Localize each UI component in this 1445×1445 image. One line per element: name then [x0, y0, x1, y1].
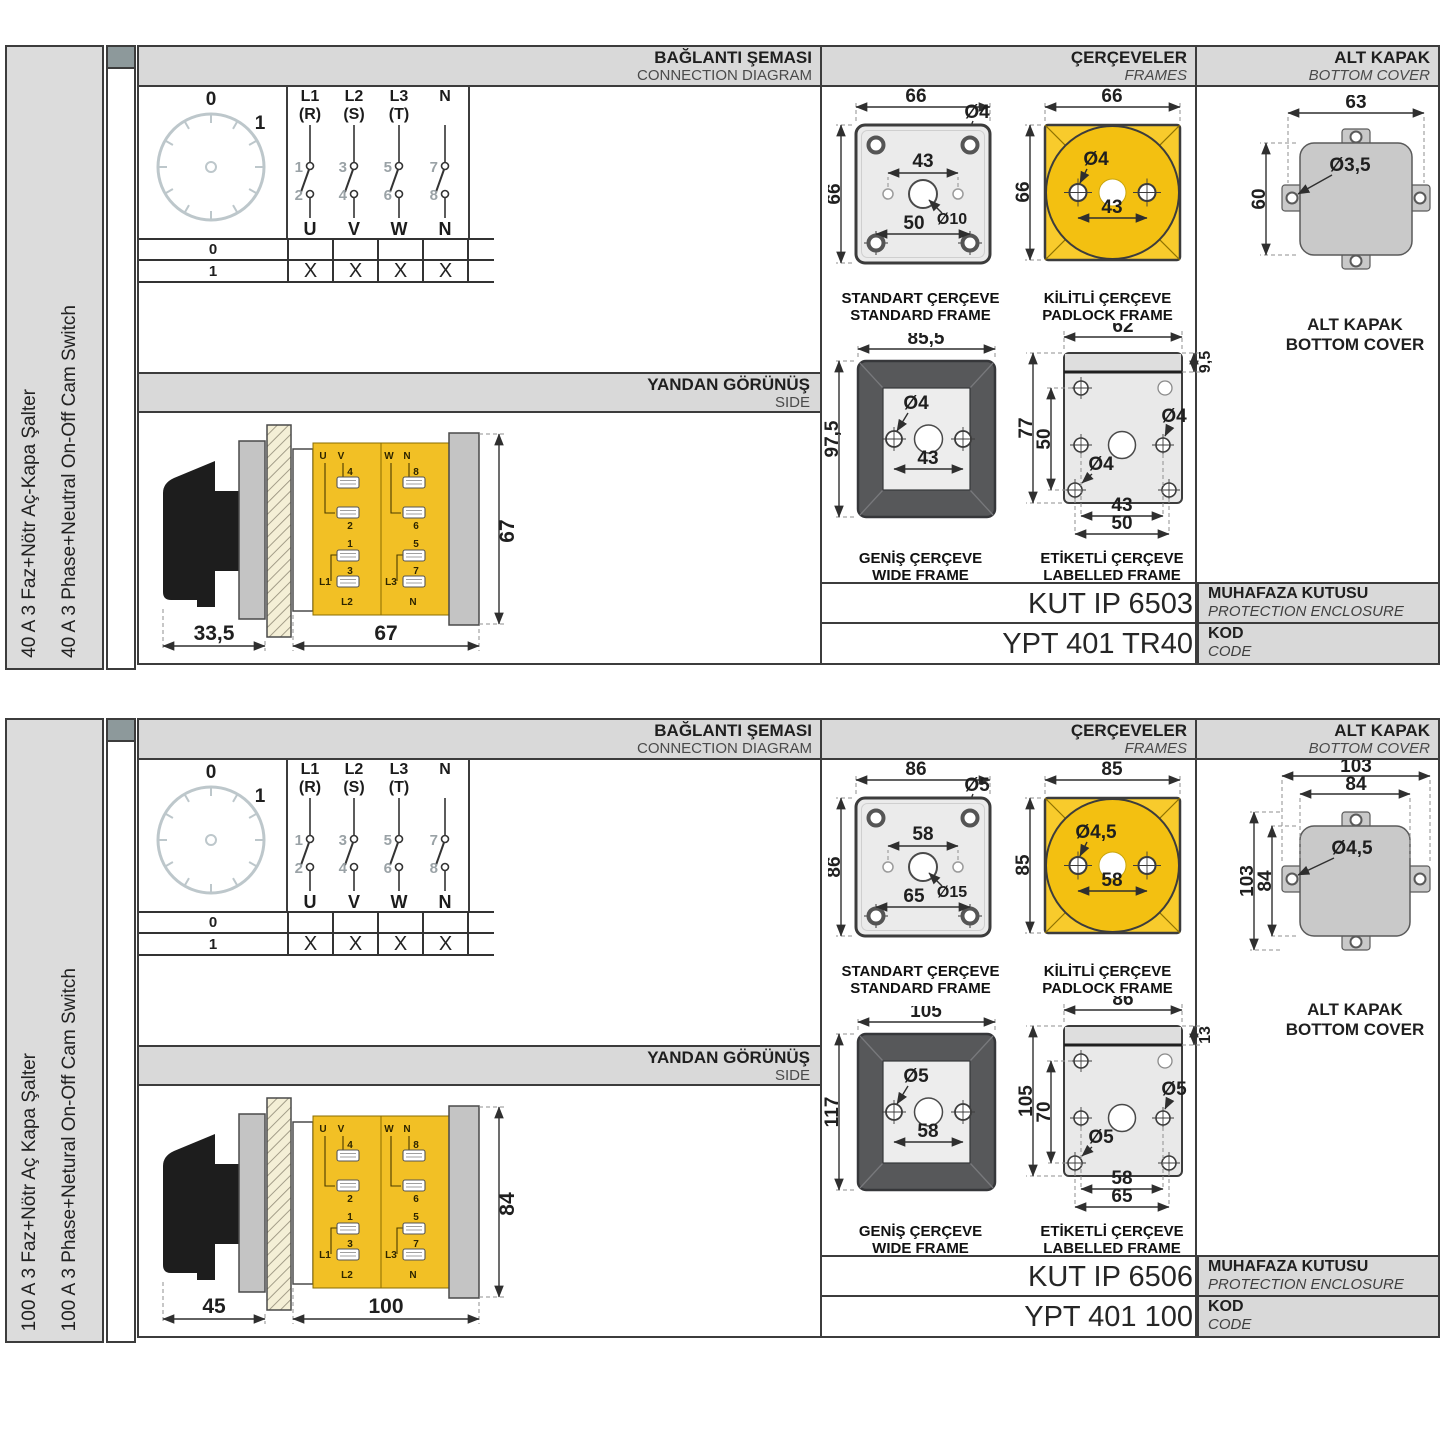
contact-in: 1	[295, 832, 303, 849]
contact-in: 1	[295, 159, 303, 176]
side-view-drawing: U V 4 2 1 3 L1 L2 W N 8	[147, 1092, 647, 1332]
product-code: YPT 401 TR40	[820, 624, 1197, 663]
dim-hole: Ø4,5	[1075, 822, 1117, 843]
padlock-frame-drawing: 85 Ø4,5 58 85	[1015, 760, 1200, 960]
pole-l3: L3 (T) 5 6 W	[384, 88, 410, 238]
product-title-english: 100 A 3 Phase+Netural On-Off Cam Switch	[59, 968, 81, 1331]
frame-label-en: STANDARD FRAME	[828, 307, 1013, 324]
dim-inner-span: 58	[912, 824, 933, 845]
wide-frame-label: GENİŞ ÇERÇEVE WIDE FRAME	[823, 550, 1018, 584]
selector-dial: 0 1	[158, 89, 266, 220]
frame-label-tr: GENİŞ ÇERÇEVE	[823, 1223, 1018, 1240]
side-view-drawing: U V 4 2 1 3 L1 L2 W N 8	[147, 419, 647, 659]
frame-label-tr: GENİŞ ÇERÇEVE	[823, 550, 1018, 567]
bottom-cover-label: ALT KAPAK BOTTOM COVER	[1240, 315, 1445, 355]
dim-width: 63	[1345, 95, 1366, 113]
header-cover-en: BOTTOM COVER	[1195, 67, 1430, 84]
pole-n: N 7 8 N	[430, 88, 452, 238]
terminal-label: 7	[413, 1239, 419, 1250]
bottom-cover-label: ALT KAPAK BOTTOM COVER	[1240, 1000, 1445, 1040]
standard-frame-drawing: 66 Ø4 43 Ø10 50 66	[828, 87, 1013, 287]
header-cover-tr: ALT KAPAK	[1195, 721, 1430, 740]
frame-label-tr: ETİKETLİ ÇERÇEVE	[1012, 1223, 1212, 1240]
wide-frame-label: GENİŞ ÇERÇEVE WIDE FRAME	[823, 1223, 1018, 1257]
code-label-en: CODE	[1208, 1316, 1438, 1333]
code-label-tr: KOD	[1208, 625, 1438, 643]
dim-span: 43	[917, 448, 938, 469]
contact-out: 6	[384, 860, 392, 877]
frame-label-en: STANDARD FRAME	[828, 980, 1013, 997]
table-cell	[467, 913, 494, 932]
enclosure-label-tr: MUHAFAZA KUTUSU	[1208, 1258, 1438, 1276]
pole-label: L1	[301, 761, 320, 778]
terminal-label: U	[319, 451, 326, 462]
contact-in: 5	[384, 159, 392, 176]
contact-out: 4	[339, 187, 348, 204]
dim-width: 86	[1112, 996, 1133, 1010]
product-title-column: 100 A 3 Faz+Nötr Aç Kapa Şalter 100 A 3 …	[5, 718, 104, 1343]
table-row-label: 1	[139, 932, 287, 954]
terminal-label: 6	[413, 1194, 419, 1205]
pole-label: L2	[345, 761, 364, 778]
contact-out: 4	[339, 860, 348, 877]
bottom-cover-drawing: 103 84 103 84 Ø4,5	[1240, 760, 1445, 995]
pole-n: N 7 8 N	[430, 761, 452, 911]
terminal-label: 2	[347, 521, 353, 532]
pole-label: L3	[390, 761, 409, 778]
header-connection-diagram: BAĞLANTI ŞEMASI CONNECTION DIAGRAM	[139, 720, 820, 758]
dim-outer-span: 50	[903, 213, 924, 234]
dim-hole-2: Ø5	[1088, 1127, 1114, 1148]
output-label: N	[439, 219, 452, 238]
output-label: W	[391, 892, 408, 911]
dim-height: 117	[823, 1097, 843, 1128]
terminal-label: L1	[319, 577, 331, 588]
product-title-column: 40 A 3 Faz+Nötr Aç-Kapa Şalter 40 A 3 Ph…	[5, 45, 104, 670]
table-cell	[422, 240, 467, 259]
dial-position-0: 0	[206, 89, 217, 110]
code-label: KOD CODE	[1197, 624, 1438, 663]
header-connection-en: CONNECTION DIAGRAM	[139, 67, 812, 84]
table-cell	[287, 240, 332, 259]
terminal-label: U	[319, 1124, 326, 1135]
contact-in: 3	[339, 832, 347, 849]
code-label-tr: KOD	[1208, 1298, 1438, 1316]
labelled-frame-label: ETİKETLİ ÇERÇEVE LABELLED FRAME	[1012, 550, 1212, 584]
terminal-label: L2	[341, 597, 353, 608]
header-connection-tr: BAĞLANTI ŞEMASI	[139, 721, 812, 740]
product-title-turkish: 40 A 3 Faz+Nötr Aç-Kapa Şalter	[19, 389, 41, 658]
table-cell-x: X	[332, 932, 377, 954]
enclosure-label: MUHAFAZA KUTUSU PROTECTION ENCLOSURE	[1197, 1257, 1438, 1295]
terminal-label: W	[384, 451, 394, 462]
enclosure-label-tr: MUHAFAZA KUTUSU	[1208, 585, 1438, 603]
section-header-row: BAĞLANTI ŞEMASI CONNECTION DIAGRAM ÇERÇE…	[139, 47, 1438, 87]
enclosure-label-en: PROTECTION ENCLOSURE	[1208, 1276, 1438, 1293]
product-panel-40a: 40 A 3 Faz+Nötr Aç-Kapa Şalter 40 A 3 Ph…	[0, 45, 1445, 677]
dim-inner-span: 43	[912, 151, 933, 172]
terminal-label: 7	[413, 566, 419, 577]
side-view-title-tr: YANDAN GÖRÜNÜŞ	[139, 375, 810, 394]
terminal-label: N	[403, 451, 410, 462]
table-cell-x: X	[332, 259, 377, 281]
table-cell-x: X	[422, 259, 467, 281]
header-bottom-cover: ALT KAPAK BOTTOM COVER	[1195, 47, 1438, 85]
dim-front-depth: 33,5	[194, 622, 235, 645]
dim-hole: Ø4,5	[1331, 838, 1373, 859]
datasheet-area: BAĞLANTI ŞEMASI CONNECTION DIAGRAM ÇERÇE…	[137, 45, 1440, 665]
code-label-en: CODE	[1208, 643, 1438, 660]
dim-span-outer: 65	[1111, 1186, 1133, 1207]
frame-label-en: PADLOCK FRAME	[1015, 980, 1200, 997]
table-row-label: 0	[139, 240, 287, 259]
dim-outer-span: 65	[903, 886, 925, 907]
padlock-frame-drawing: 66 Ø4 43 66	[1015, 87, 1200, 287]
pole-label: L3	[390, 88, 409, 105]
enclosure-label-en: PROTECTION ENCLOSURE	[1208, 603, 1438, 620]
dim-body-height: 84	[496, 1192, 519, 1216]
pole-sublabel: (T)	[389, 779, 409, 796]
dim-width-inner: 84	[1345, 774, 1367, 795]
table-cell	[467, 240, 494, 259]
dim-width: 85,5	[908, 333, 945, 349]
contact-in: 5	[384, 832, 392, 849]
header-frames-en: FRAMES	[820, 740, 1187, 757]
dim-hole-2: Ø4	[1088, 454, 1114, 475]
enclosure-label: MUHAFAZA KUTUSU PROTECTION ENCLOSURE	[1197, 584, 1438, 622]
header-frames-tr: ÇERÇEVELER	[820, 721, 1187, 740]
dim-hole: Ø4	[1083, 149, 1109, 170]
dim-height: 60	[1249, 188, 1270, 209]
header-cover-tr: ALT KAPAK	[1195, 48, 1430, 67]
side-view-header: YANDAN GÖRÜNÜŞ SIDE	[139, 372, 820, 413]
labelled-frame-drawing: 86 13 Ø5 Ø5 70 105	[1012, 996, 1212, 1221]
labelled-frame-label: ETİKETLİ ÇERÇEVE LABELLED FRAME	[1012, 1223, 1212, 1257]
column-divider	[820, 47, 822, 663]
dim-body-depth: 67	[374, 622, 397, 645]
binder-cap	[108, 47, 134, 69]
dim-hole-1: Ø4	[1161, 406, 1187, 427]
product-code: YPT 401 100	[820, 1297, 1197, 1336]
dim-hole: Ø5	[903, 1066, 929, 1087]
dim-width: 66	[905, 87, 926, 107]
standard-frame-label: STANDART ÇERÇEVE STANDARD FRAME	[828, 290, 1013, 324]
wide-frame-drawing: 85,5 Ø4 43 97,5	[823, 333, 1018, 548]
dim-height: 86	[828, 856, 845, 877]
header-frames: ÇERÇEVELER FRAMES	[820, 47, 1195, 85]
padlock-frame-label: KİLİTLİ ÇERÇEVE PADLOCK FRAME	[1015, 290, 1200, 324]
terminal-label: L3	[385, 577, 397, 588]
terminal-label: 5	[413, 1212, 419, 1223]
dim-center-hole: Ø15	[937, 884, 967, 901]
front-plate	[239, 1114, 265, 1292]
product-code-row: YPT 401 100 KOD CODE	[820, 1295, 1438, 1336]
frame-label-tr: KİLİTLİ ÇERÇEVE	[1015, 290, 1200, 307]
terminal-label: V	[338, 1124, 345, 1135]
table-cell	[287, 913, 332, 932]
product-title-english: 40 A 3 Phase+Neutral On-Off Cam Switch	[59, 305, 81, 658]
pole-l2: L2 (S) 3 4 V	[339, 761, 365, 911]
pole-label: N	[439, 88, 451, 105]
table-cell	[332, 913, 377, 932]
terminal-label: 3	[347, 1239, 353, 1250]
switch-handle	[163, 461, 239, 607]
pole-sublabel: (R)	[299, 779, 321, 796]
pole-sublabel: (S)	[343, 106, 364, 123]
dim-hole-1: Ø5	[1161, 1079, 1187, 1100]
frame-label-tr: KİLİTLİ ÇERÇEVE	[1015, 963, 1200, 980]
binder-strip	[106, 718, 136, 1343]
contact-out: 2	[295, 187, 303, 204]
terminal-label: 8	[413, 467, 419, 478]
terminal-label: 2	[347, 1194, 353, 1205]
connection-diagram-drawing: 0 1 L1 (R) 1 2 U L2 (S) 3 4 V	[139, 85, 499, 238]
dim-body-depth: 100	[368, 1295, 403, 1318]
front-plate	[239, 441, 265, 619]
pole-l3: L3 (T) 5 6 W	[384, 761, 410, 911]
terminal-label: 4	[347, 467, 353, 478]
dim-height: 97,5	[823, 420, 843, 457]
contact-out: 6	[384, 187, 392, 204]
pole-label: L1	[301, 88, 320, 105]
contact-out: 8	[430, 187, 438, 204]
output-label: V	[348, 219, 360, 238]
terminal-label: 8	[413, 1140, 419, 1151]
terminal-label: 3	[347, 566, 353, 577]
contact-out: 8	[430, 860, 438, 877]
terminal-label: N	[409, 597, 416, 608]
terminal-label: N	[409, 1270, 416, 1281]
pole-l1: L1 (R) 1 2 U	[295, 88, 321, 238]
dim-height: 105	[1016, 1085, 1037, 1117]
dim-hole: Ø4	[903, 393, 929, 414]
terminal-label: V	[338, 451, 345, 462]
terminal-label: 1	[347, 539, 353, 550]
dim-hole: Ø3,5	[1329, 155, 1371, 176]
dim-span: 43	[1101, 197, 1122, 218]
output-label: U	[304, 219, 317, 238]
terminal-label: 4	[347, 1140, 353, 1151]
output-label: U	[304, 892, 317, 911]
frame-label-en: PADLOCK FRAME	[1015, 307, 1200, 324]
table-cell	[377, 913, 422, 932]
output-label: N	[439, 892, 452, 911]
selector-dial: 0 1	[158, 762, 266, 893]
dim-height-inner: 84	[1255, 870, 1276, 892]
section-header-row: BAĞLANTI ŞEMASI CONNECTION DIAGRAM ÇERÇE…	[139, 720, 1438, 760]
side-view-title-tr: YANDAN GÖRÜNÜŞ	[139, 1048, 810, 1067]
frame-label-tr: STANDART ÇERÇEVE	[828, 290, 1013, 307]
switching-table: 0 1 X X X X	[139, 238, 494, 283]
output-label: V	[348, 892, 360, 911]
dim-corner-hole: Ø5	[964, 775, 990, 796]
cover-label-en: BOTTOM COVER	[1240, 1020, 1445, 1040]
table-cell-x: X	[287, 932, 332, 954]
labelled-frame-drawing: 62 9,5 Ø4 Ø4 50 77	[1012, 323, 1212, 548]
dim-strip: 13	[1197, 1026, 1212, 1044]
table-cell	[377, 240, 422, 259]
switch-body: U V 4 2 1 3 L1 L2 W N 8	[313, 443, 449, 615]
dim-height: 66	[828, 183, 845, 204]
enclosure-code-row: KUT IP 6503 MUHAFAZA KUTUSU PROTECTION E…	[820, 582, 1438, 622]
padlock-frame-label: KİLİTLİ ÇERÇEVE PADLOCK FRAME	[1015, 963, 1200, 997]
header-connection-en: CONNECTION DIAGRAM	[139, 740, 812, 757]
pole-l2: L2 (S) 3 4 V	[339, 88, 365, 238]
pole-label: N	[439, 761, 451, 778]
pole-l1: L1 (R) 1 2 U	[295, 761, 321, 911]
dim-width: 85	[1101, 760, 1123, 780]
bottom-cover-drawing: 63 60 Ø3,5	[1240, 95, 1445, 310]
switch-handle	[163, 1134, 239, 1280]
code-label: KOD CODE	[1197, 1297, 1438, 1336]
enclosure-code: KUT IP 6506	[820, 1257, 1197, 1295]
header-frames-tr: ÇERÇEVELER	[820, 48, 1187, 67]
product-panel-100a: 100 A 3 Faz+Nötr Aç Kapa Şalter 100 A 3 …	[0, 718, 1445, 1350]
header-connection-diagram: BAĞLANTI ŞEMASI CONNECTION DIAGRAM	[139, 47, 820, 85]
end-plate	[449, 1106, 479, 1298]
dim-span: 58	[1101, 870, 1122, 891]
table-cell	[467, 259, 494, 281]
end-plate	[449, 433, 479, 625]
side-view-title-en: SIDE	[139, 394, 810, 411]
table-cell-x: X	[287, 259, 332, 281]
terminal-label: L3	[385, 1250, 397, 1261]
pole-sublabel: (T)	[389, 106, 409, 123]
header-bottom-cover: ALT KAPAK BOTTOM COVER	[1195, 720, 1438, 758]
side-view-title-en: SIDE	[139, 1067, 810, 1084]
terminal-label: W	[384, 1124, 394, 1135]
mounting-wall	[267, 425, 291, 637]
dim-span-outer: 50	[1111, 513, 1132, 534]
datasheet-area: BAĞLANTI ŞEMASI CONNECTION DIAGRAM ÇERÇE…	[137, 718, 1440, 1338]
contact-out: 2	[295, 860, 303, 877]
terminal-label: 1	[347, 1212, 353, 1223]
table-cell-x: X	[377, 932, 422, 954]
dim-strip: 9,5	[1197, 351, 1212, 373]
pole-label: L2	[345, 88, 364, 105]
terminal-label: N	[403, 1124, 410, 1135]
binder-cap	[108, 720, 134, 742]
frame-label-tr: STANDART ÇERÇEVE	[828, 963, 1013, 980]
table-cell-x: X	[422, 932, 467, 954]
terminal-label: L1	[319, 1250, 331, 1261]
header-connection-tr: BAĞLANTI ŞEMASI	[139, 48, 812, 67]
contact-in: 7	[430, 832, 438, 849]
terminal-label: 6	[413, 521, 419, 532]
contact-in: 7	[430, 159, 438, 176]
column-divider	[820, 720, 822, 1336]
table-row-label: 1	[139, 259, 287, 281]
switch-body: U V 4 2 1 3 L1 L2 W N 8	[313, 1116, 449, 1288]
product-code-row: YPT 401 TR40 KOD CODE	[820, 622, 1438, 663]
dial-position-1: 1	[255, 786, 266, 807]
dim-inner-height: 70	[1034, 1101, 1055, 1122]
table-row-label: 0	[139, 913, 287, 932]
binder-strip	[106, 45, 136, 670]
dim-height: 66	[1015, 181, 1034, 202]
dim-width: 105	[910, 1006, 942, 1022]
contact-in: 3	[339, 159, 347, 176]
output-label: W	[391, 219, 408, 238]
dim-width: 66	[1101, 87, 1122, 107]
spacer-plate	[293, 1122, 313, 1284]
table-cell	[422, 913, 467, 932]
side-view-header: YANDAN GÖRÜNÜŞ SIDE	[139, 1045, 820, 1086]
standard-frame-label: STANDART ÇERÇEVE STANDARD FRAME	[828, 963, 1013, 997]
switching-table: 0 1 X X X X	[139, 911, 494, 956]
cover-label-tr: ALT KAPAK	[1240, 315, 1445, 335]
product-title-turkish: 100 A 3 Faz+Nötr Aç Kapa Şalter	[19, 1053, 41, 1331]
header-frames: ÇERÇEVELER FRAMES	[820, 720, 1195, 758]
frame-label-tr: ETİKETLİ ÇERÇEVE	[1012, 550, 1212, 567]
wide-frame-drawing: 105 Ø5 58 117	[823, 1006, 1018, 1221]
dial-position-0: 0	[206, 762, 217, 783]
enclosure-code: KUT IP 6503	[820, 584, 1197, 622]
dim-height: 77	[1016, 417, 1037, 438]
dim-body-height: 67	[496, 519, 519, 542]
dim-width: 86	[905, 760, 926, 780]
table-cell	[467, 932, 494, 954]
dim-center-hole: Ø10	[937, 211, 967, 228]
dim-inner-height: 50	[1034, 428, 1055, 449]
mounting-wall	[267, 1098, 291, 1310]
dim-front-depth: 45	[202, 1295, 226, 1318]
enclosure-code-row: KUT IP 6506 MUHAFAZA KUTUSU PROTECTION E…	[820, 1255, 1438, 1295]
cover-label-en: BOTTOM COVER	[1240, 335, 1445, 355]
terminal-label: L2	[341, 1270, 353, 1281]
cover-label-tr: ALT KAPAK	[1240, 1000, 1445, 1020]
connection-diagram-drawing: 0 1 L1 (R) 1 2 U L2 (S) 3 4 V	[139, 758, 499, 911]
dim-height: 85	[1015, 854, 1034, 876]
table-cell-x: X	[377, 259, 422, 281]
standard-frame-drawing: 86 Ø5 58 Ø15 65 86	[828, 760, 1013, 960]
terminal-label: 5	[413, 539, 419, 550]
header-cover-en: BOTTOM COVER	[1195, 740, 1430, 757]
spacer-plate	[293, 449, 313, 611]
dial-position-1: 1	[255, 113, 266, 134]
table-cell	[332, 240, 377, 259]
header-frames-en: FRAMES	[820, 67, 1187, 84]
dim-span: 58	[917, 1121, 938, 1142]
pole-sublabel: (R)	[299, 106, 321, 123]
dim-width: 62	[1112, 323, 1133, 337]
dim-corner-hole: Ø4	[964, 102, 990, 123]
pole-sublabel: (S)	[343, 779, 364, 796]
